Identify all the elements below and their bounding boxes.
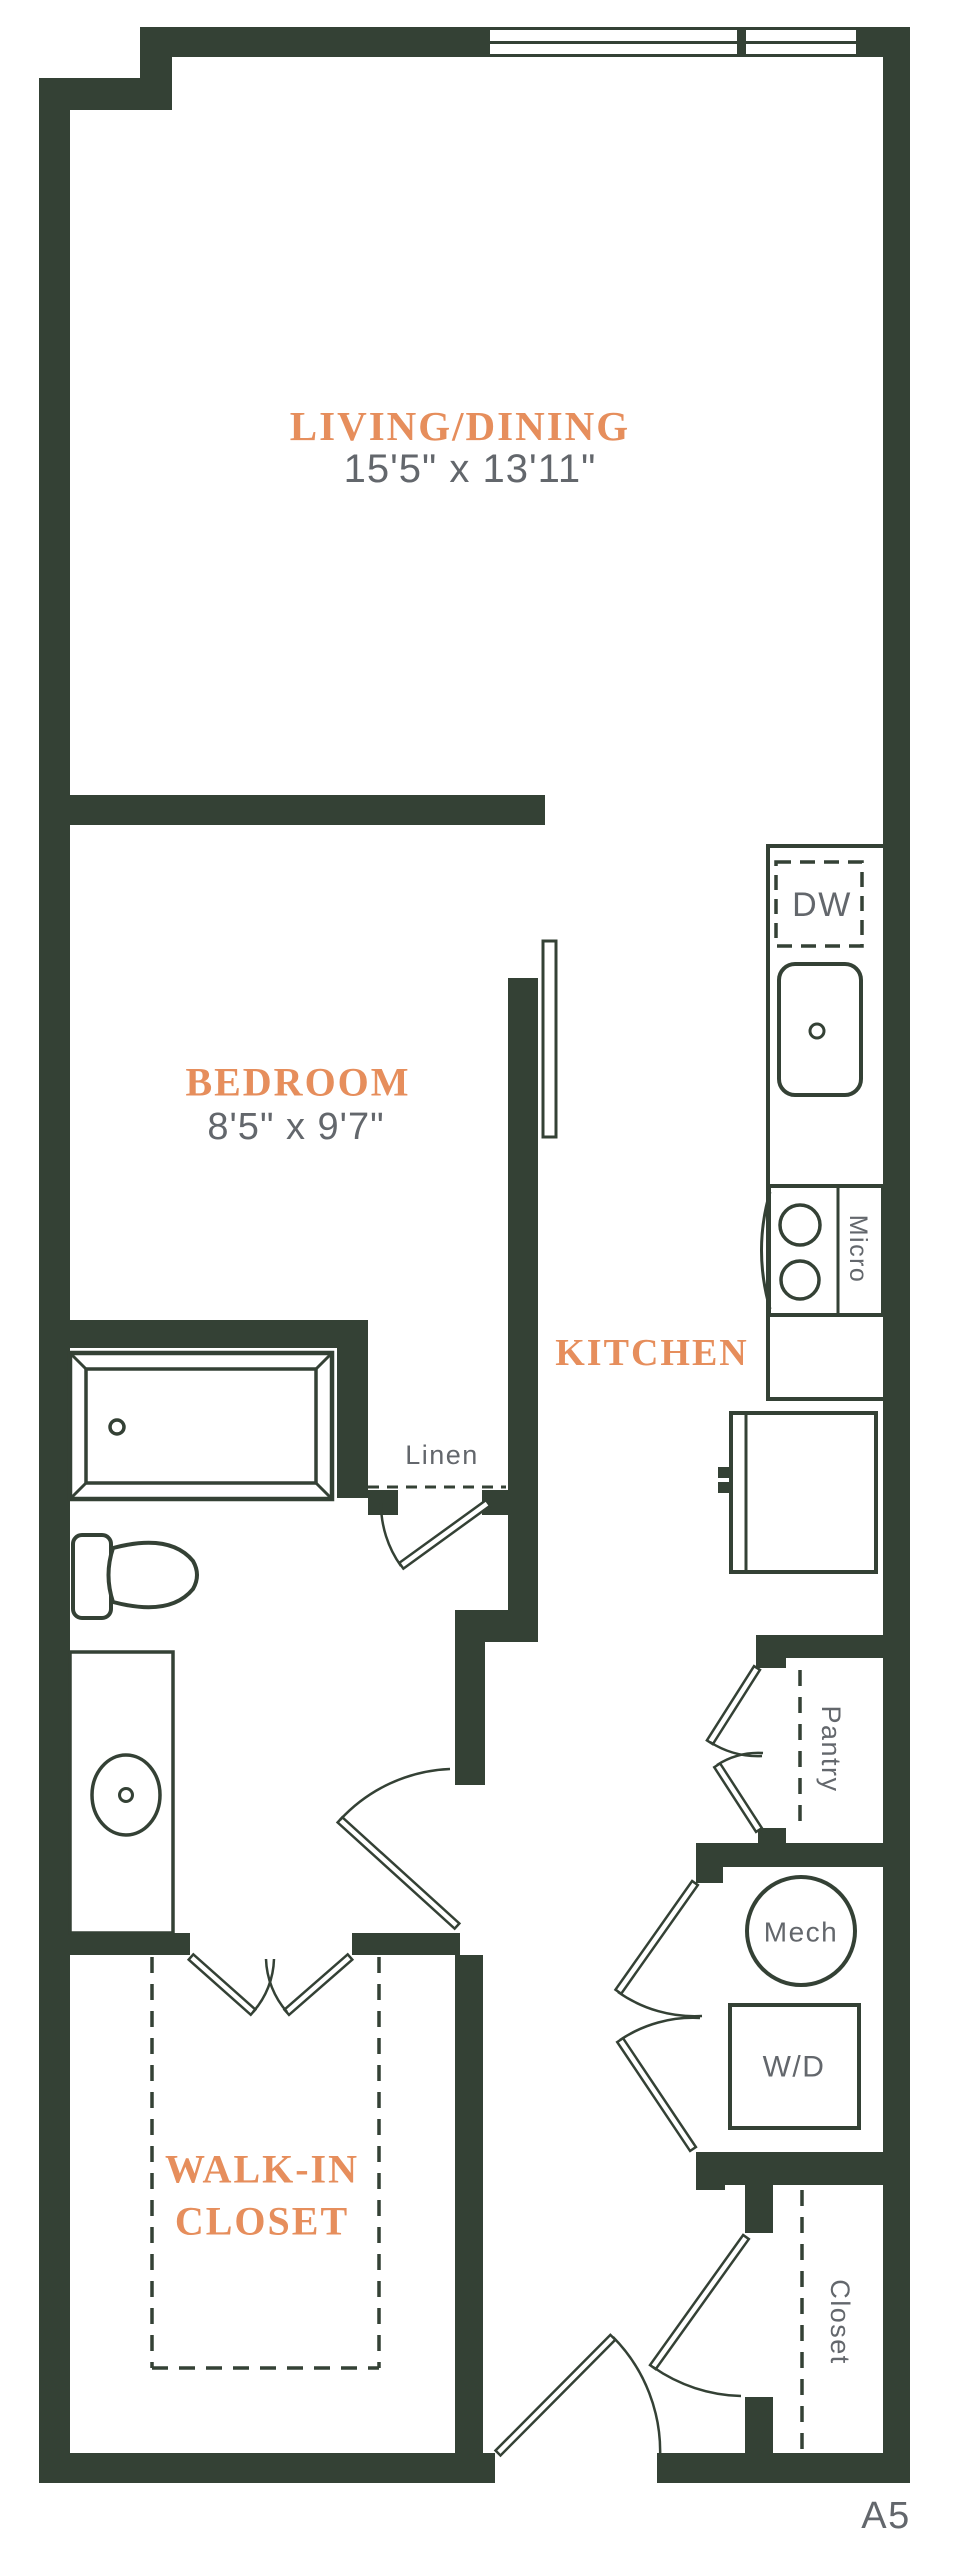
- kitchen-sink: [779, 964, 861, 1095]
- bifold-door-leaf: [707, 1666, 760, 1744]
- wall-segment: [745, 2397, 773, 2457]
- wall-segment: [455, 1642, 485, 1785]
- label-mech: Mech: [764, 1917, 838, 1948]
- refrigerator: [718, 1413, 876, 1572]
- wall-segment: [508, 978, 538, 1610]
- door-leaf: [496, 2335, 616, 2456]
- window: [490, 30, 856, 54]
- refrigerator-handle: [718, 1467, 732, 1478]
- window-mullion: [490, 41, 856, 44]
- bathtub: [70, 1353, 332, 1499]
- room-label-bedroom: BEDROOM: [185, 1060, 410, 1105]
- wall-segment: [696, 1843, 883, 1867]
- wall-segment: [70, 1933, 190, 1955]
- refrigerator-outline: [731, 1413, 876, 1572]
- vanity: [70, 1652, 173, 1933]
- wall-segment: [696, 2152, 725, 2190]
- window-divider: [737, 30, 746, 54]
- toilet-bowl: [109, 1543, 198, 1607]
- wall-segment: [352, 1933, 460, 1955]
- bifold-door-leaf: [617, 2038, 696, 2151]
- bathtub-drain: [110, 1420, 124, 1434]
- floor-plan: LIVING/DINING 15'5" x 13'11" BEDROOM 8'5…: [0, 0, 953, 2560]
- wall-segment: [70, 1320, 368, 1348]
- label-microwave: Micro: [844, 1215, 872, 1284]
- room-label-living-dining: LIVING/DINING: [290, 403, 630, 449]
- wall-segment: [883, 27, 910, 2483]
- bifold-door-leaf: [284, 1954, 352, 2014]
- room-label-walkin-line1: WALK-IN: [165, 2147, 359, 2192]
- wall-segment: [368, 1490, 398, 1515]
- label-linen: Linen: [405, 1440, 479, 1470]
- toilet-tank: [73, 1535, 111, 1618]
- refrigerator-handle: [718, 1482, 732, 1493]
- bifold-door-leaf: [189, 1954, 256, 2014]
- wall-segment: [696, 1843, 723, 1883]
- door-swing-arc: [653, 2367, 741, 2396]
- floor-plan-drawing: LIVING/DINING 15'5" x 13'11" BEDROOM 8'5…: [0, 0, 953, 2560]
- door-leaf: [338, 1817, 460, 1928]
- label-washer-dryer: W/D: [763, 2051, 826, 2084]
- door-leaf: [650, 2235, 749, 2369]
- wall-segment: [758, 1828, 786, 1844]
- door-leaf: [399, 1500, 490, 1568]
- sliding-door: [543, 941, 556, 1137]
- wall-segment: [756, 1635, 786, 1668]
- bifold-door-leaf: [714, 1763, 762, 1831]
- wall-segment: [455, 1955, 483, 2453]
- room-dimensions-bedroom: 8'5" x 9'7": [207, 1106, 384, 1148]
- label-closet: Closet: [825, 2279, 855, 2365]
- room-dimensions-living-dining: 15'5" x 13'11": [344, 447, 597, 491]
- door-swing-arc: [620, 2018, 700, 2040]
- wall-segment: [455, 1610, 538, 1642]
- toilet: [73, 1535, 197, 1618]
- plan-code: A5: [861, 2495, 910, 2537]
- kitchen-sink-drain: [810, 1024, 824, 1038]
- wall-segment: [657, 2453, 910, 2483]
- wall-segment: [745, 2185, 773, 2233]
- door-swing-arc: [717, 1753, 763, 1765]
- wall-segment: [39, 78, 70, 2483]
- room-label-walkin-line2: CLOSET: [175, 2199, 349, 2244]
- vanity-drain: [120, 1789, 133, 1802]
- wall-segment: [70, 795, 545, 825]
- label-dishwasher: DW: [792, 886, 852, 924]
- door-swing-arc: [340, 1769, 450, 1820]
- door-swing-arc: [613, 2337, 660, 2459]
- label-pantry: Pantry: [816, 1705, 846, 1792]
- bifold-door-leaf: [615, 1881, 697, 1994]
- door-swing-arc: [618, 1992, 702, 2016]
- wall-segment: [337, 1348, 368, 1498]
- wall-segment: [39, 2453, 495, 2483]
- room-label-kitchen: KITCHEN: [555, 1332, 748, 1374]
